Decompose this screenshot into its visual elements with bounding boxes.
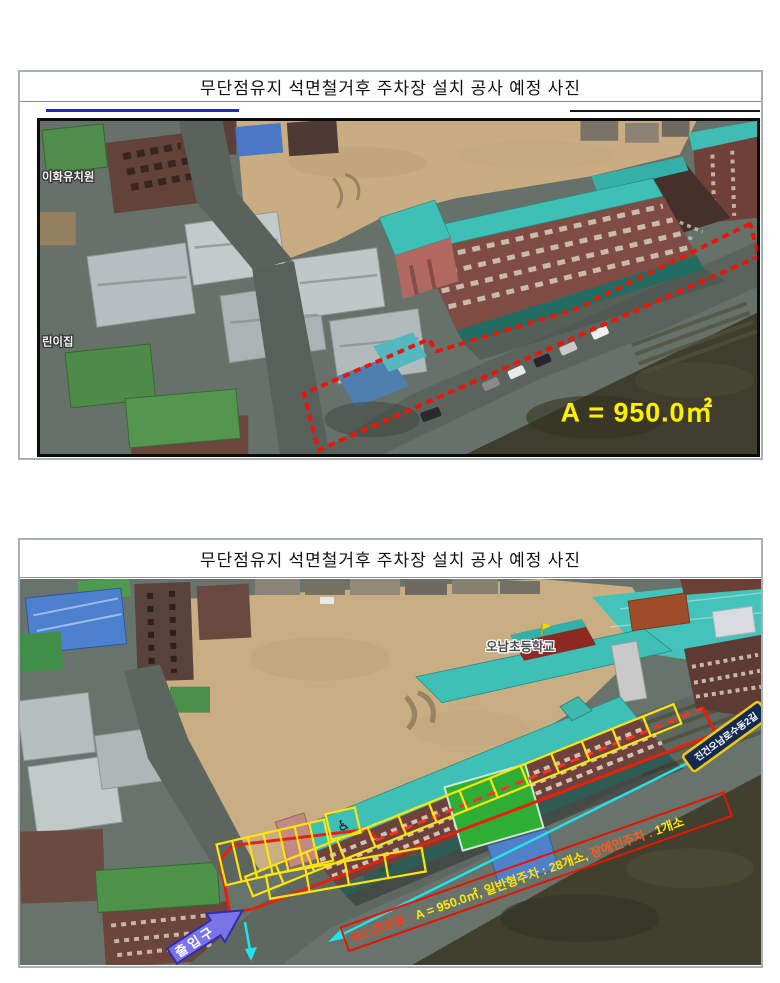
aerial-photo-before-svg: 이화유치원 린이집 A = 950.0㎡ [40,121,757,454]
panel-after: 무단점유지 석면철거후 주차장 설치 공사 예정 사진 [18,538,763,968]
black-underline [570,110,760,112]
map-label-daycare: 린이집 [42,334,73,348]
blue-underline [46,109,239,112]
panel-before: 무단점유지 석면철거후 주차장 설치 공사 예정 사진 [18,70,763,460]
scene-after [20,579,761,965]
aerial-photo-after-svg: ♿ 출입구 아스콘포장 : A = 950.0㎡, 일반형주차 : 28개소, … [20,579,761,965]
school-label-text: 오남초등학교 [486,639,555,654]
area-label: A = 950.0㎡ [561,396,714,427]
panel-title: 무단점유지 석면철거후 주차장 설치 공사 예정 사진 [20,540,761,578]
document-page: 무단점유지 석면철거후 주차장 설치 공사 예정 사진 [0,0,780,983]
aerial-photo-after: ♿ 출입구 아스콘포장 : A = 950.0㎡, 일반형주차 : 28개소, … [20,579,761,965]
map-label-kindergarten: 이화유치원 [42,169,94,183]
panel-title: 무단점유지 석면철거후 주차장 설치 공사 예정 사진 [20,72,761,102]
aerial-photo-before: 이화유치원 린이집 A = 950.0㎡ [37,118,760,457]
